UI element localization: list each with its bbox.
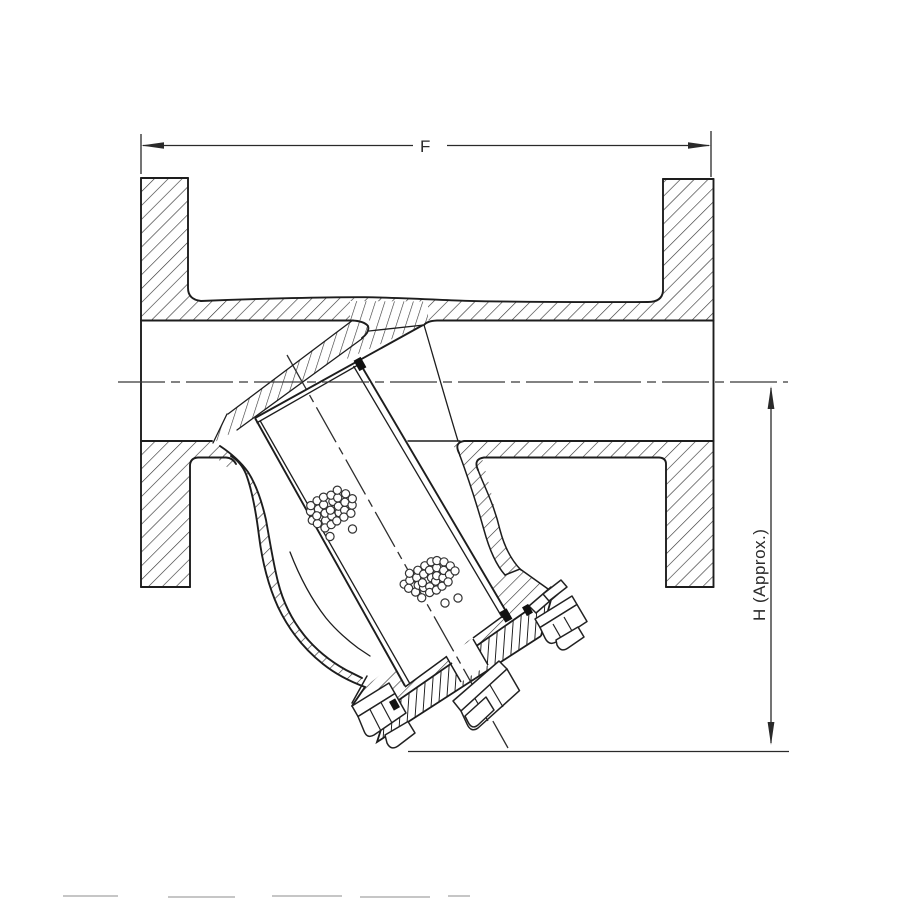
svg-text:H (Approx.): H (Approx.) [750,529,769,621]
svg-text:F: F [420,137,430,156]
